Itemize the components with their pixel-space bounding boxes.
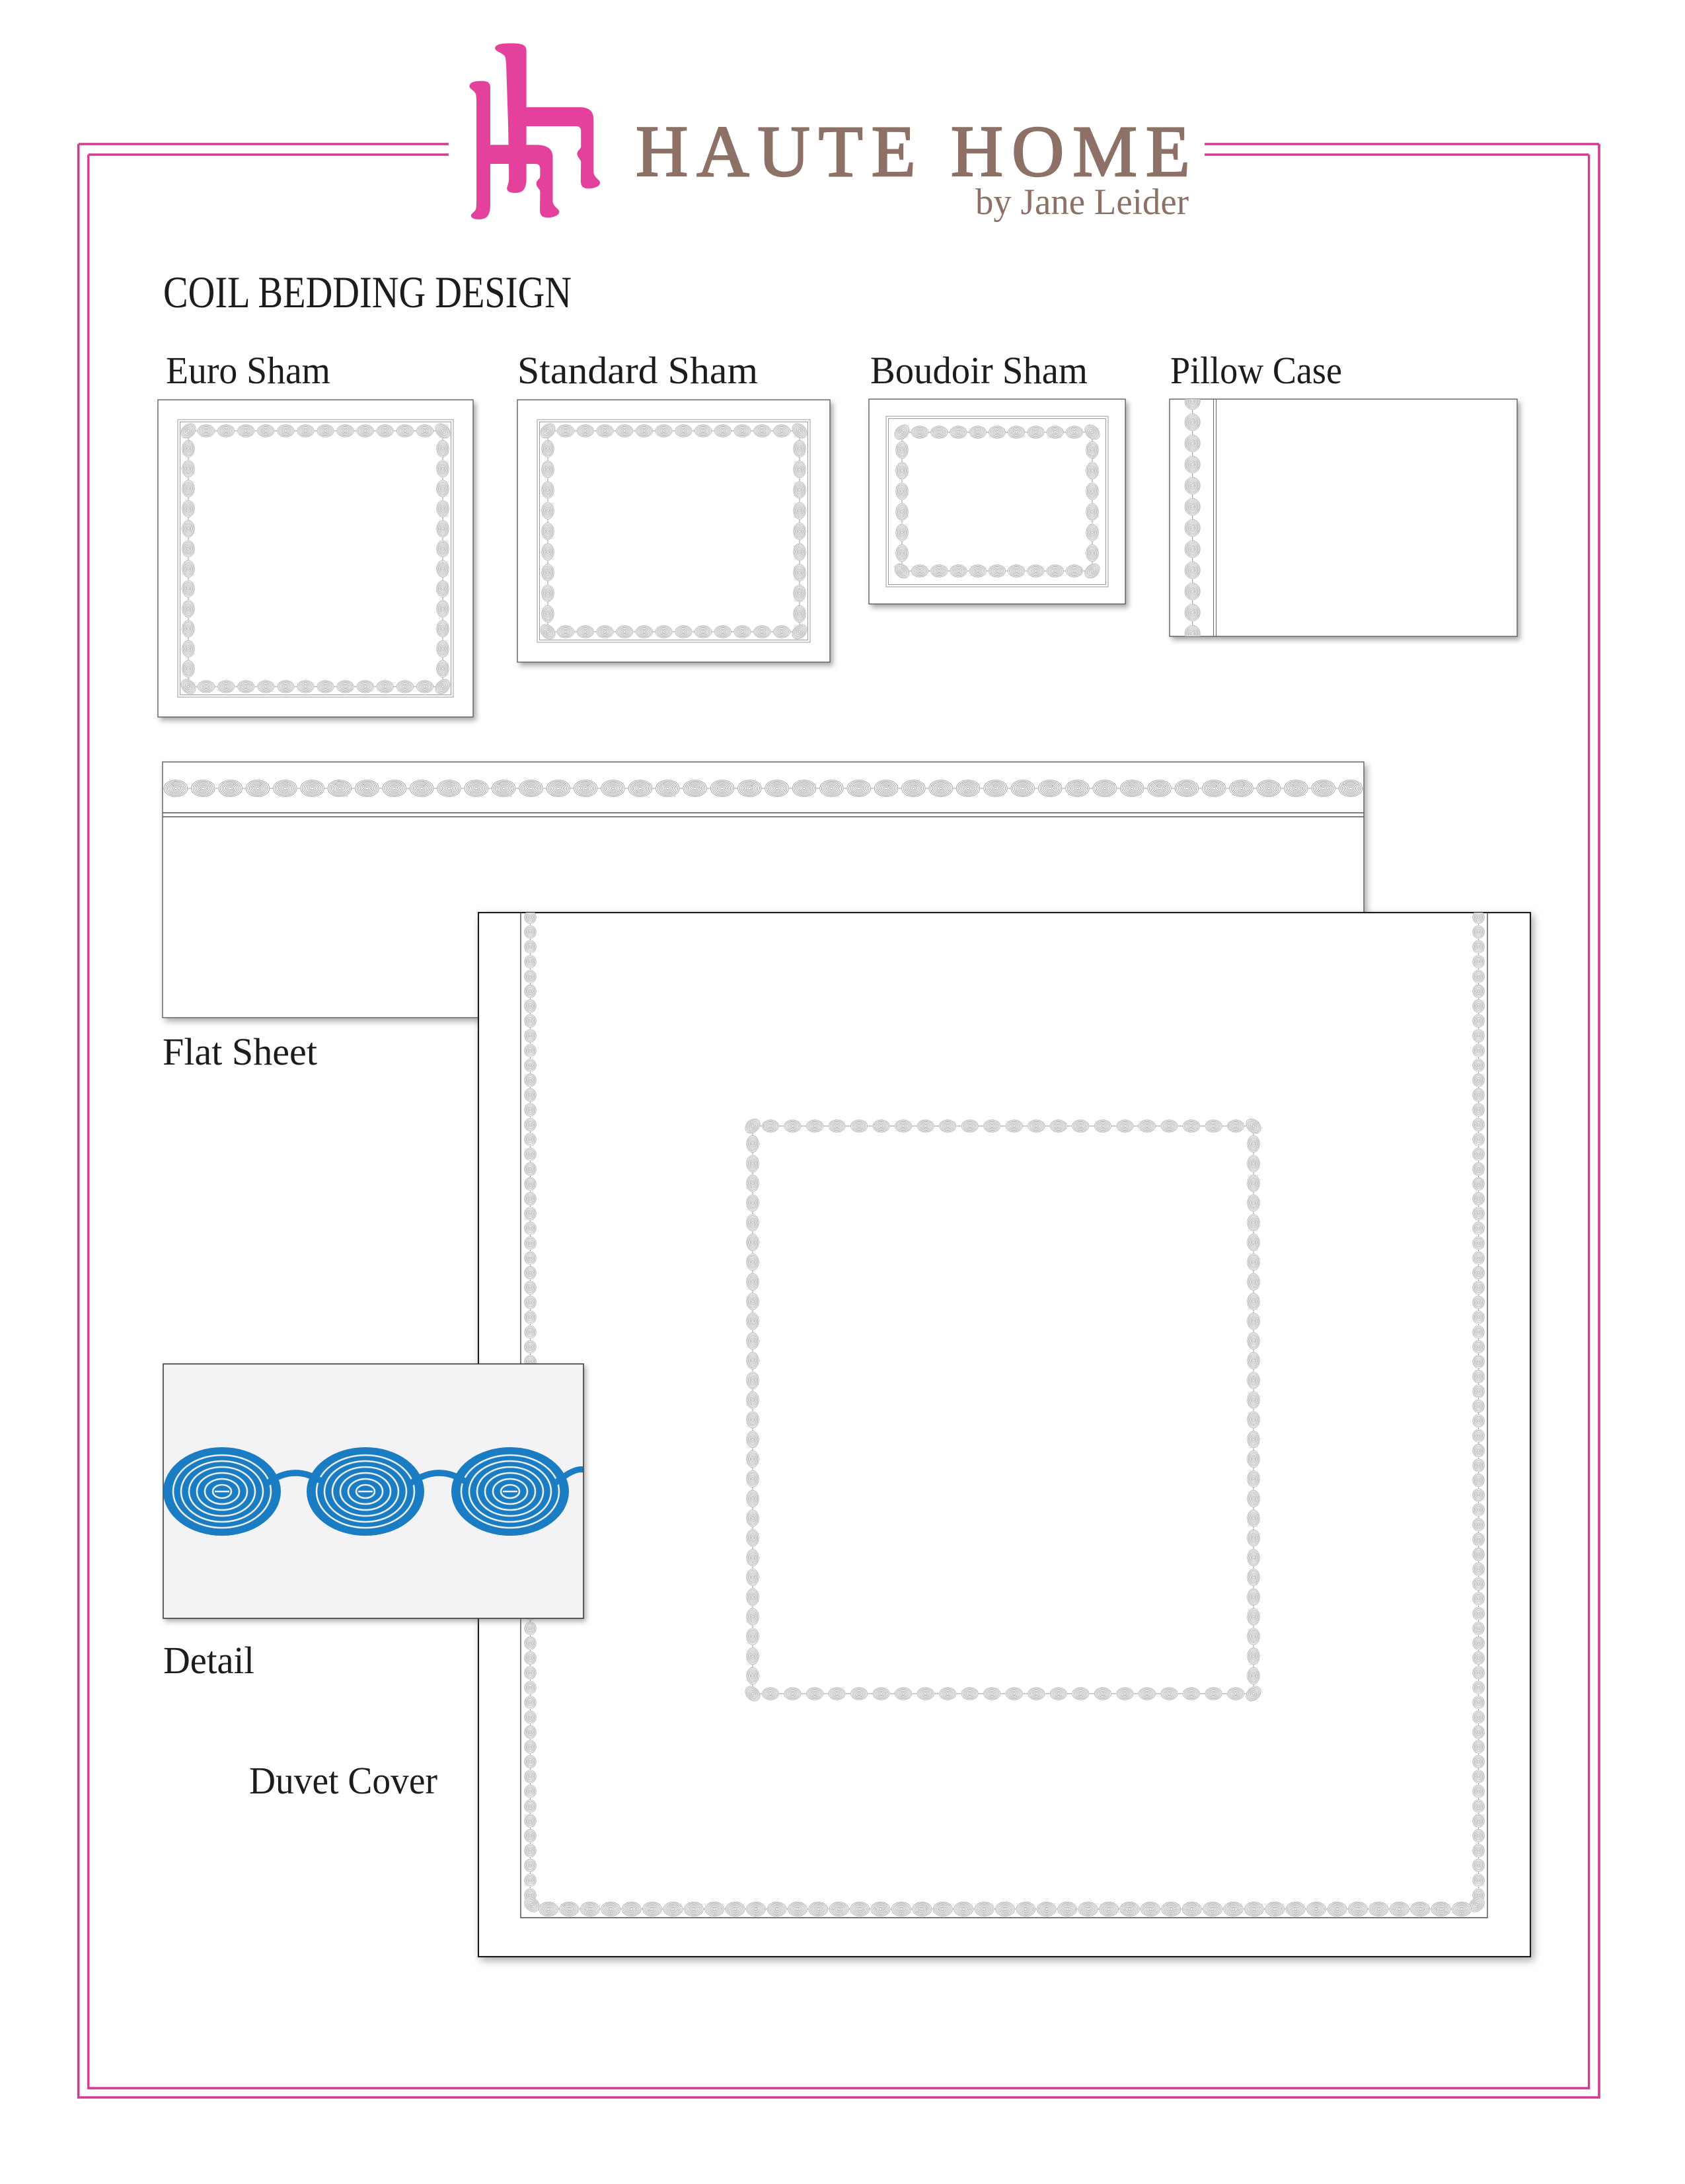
svg-text:Duvet Cover: Duvet Cover [249, 1759, 437, 1802]
svg-text:Pillow Case: Pillow Case [1170, 349, 1342, 392]
svg-text:COIL BEDDING DESIGN: COIL BEDDING DESIGN [163, 267, 572, 317]
svg-text:HAUTE HOME: HAUTE HOME [636, 111, 1190, 192]
svg-text:Flat Sheet: Flat Sheet [163, 1030, 317, 1073]
svg-text:Detail: Detail [163, 1639, 254, 1682]
svg-text:Boudoir Sham: Boudoir Sham [870, 349, 1088, 392]
svg-text:Euro Sham: Euro Sham [166, 349, 330, 392]
svg-text:Standard Sham: Standard Sham [517, 349, 758, 392]
svg-text:by Jane Leider: by Jane Leider [975, 182, 1189, 223]
